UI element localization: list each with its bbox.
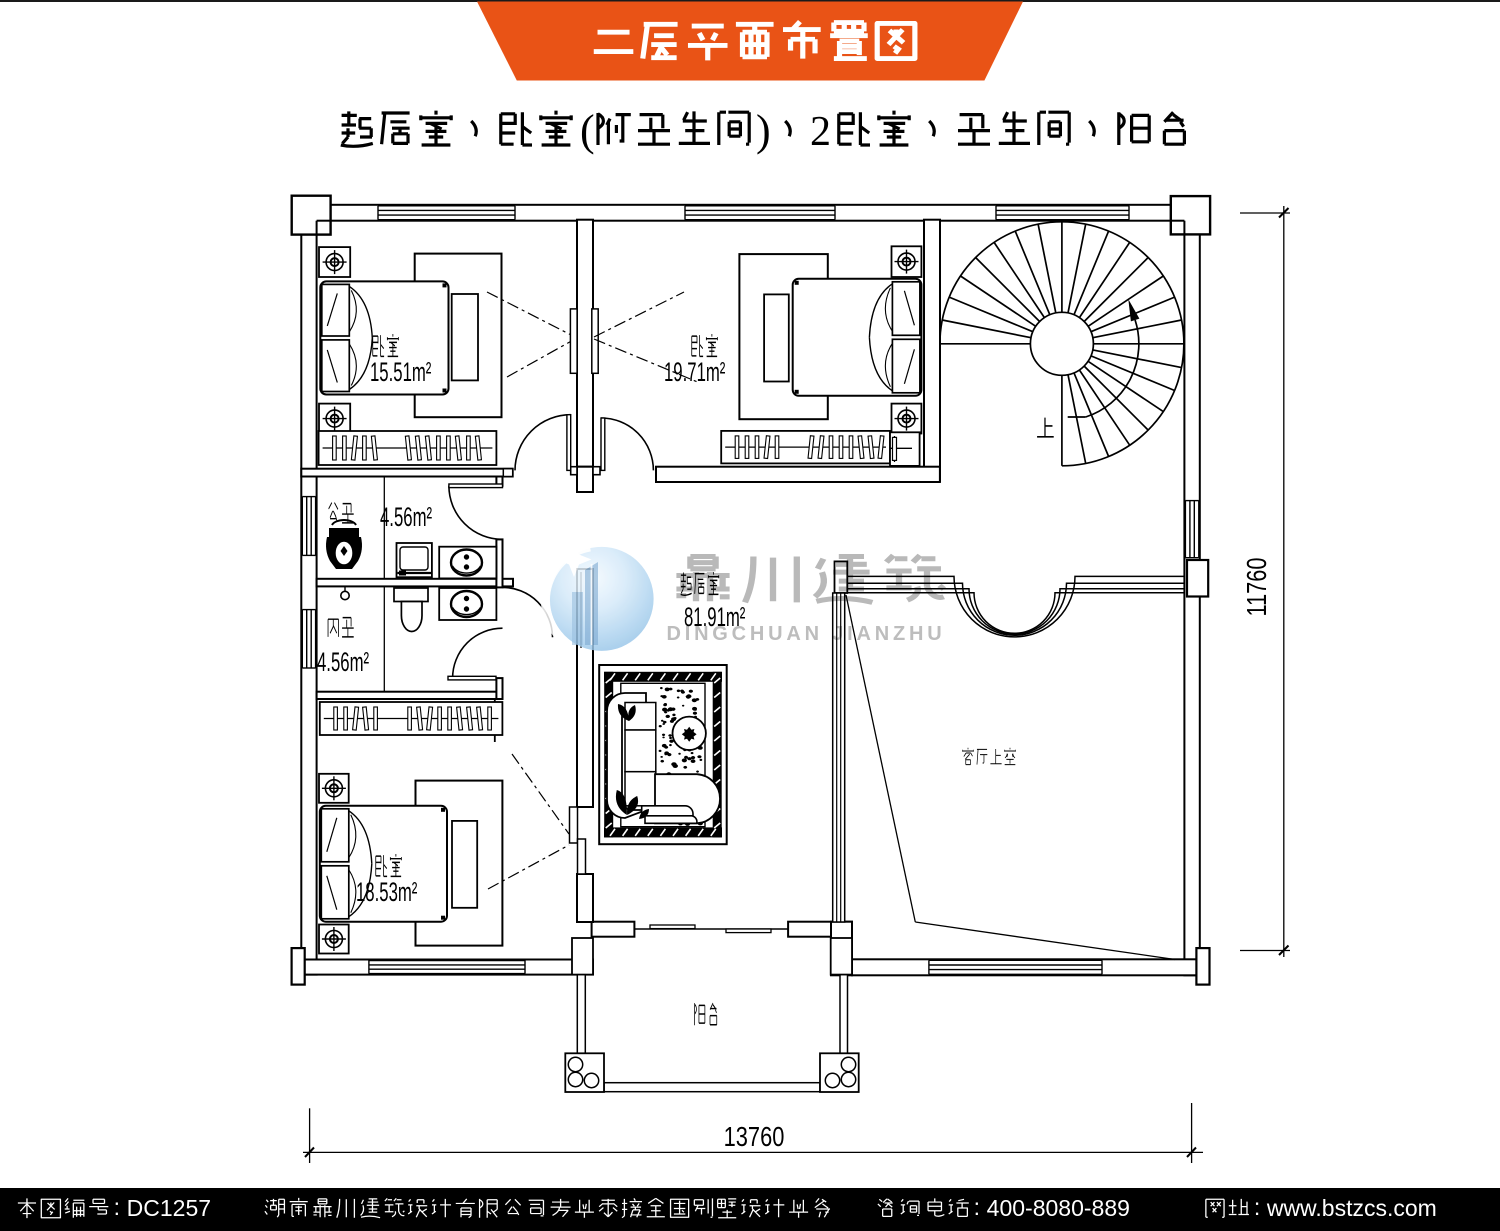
svg-text:DC1257: DC1257 xyxy=(127,1195,211,1221)
svg-text:4.56m²: 4.56m² xyxy=(380,502,432,532)
svg-text:DINGCHUAN JIANZHU: DINGCHUAN JIANZHU xyxy=(666,623,945,645)
svg-text:www.bstzcs.com: www.bstzcs.com xyxy=(1266,1195,1437,1221)
svg-text:13760: 13760 xyxy=(724,1121,785,1152)
svg-text:18.53m²: 18.53m² xyxy=(356,877,418,907)
svg-text:400-8080-889: 400-8080-889 xyxy=(987,1195,1130,1221)
svg-text::: : xyxy=(974,1194,980,1220)
svg-text::: : xyxy=(1254,1194,1260,1220)
svg-text:(: ( xyxy=(580,106,595,155)
svg-text:19.71m²: 19.71m² xyxy=(664,357,726,387)
svg-text:4.56m²: 4.56m² xyxy=(317,647,369,677)
svg-text:2: 2 xyxy=(810,109,831,155)
svg-text::: : xyxy=(114,1194,120,1220)
svg-text:15.51m²: 15.51m² xyxy=(370,357,432,387)
svg-text:11760: 11760 xyxy=(1241,557,1272,616)
svg-text:): ) xyxy=(756,106,771,155)
